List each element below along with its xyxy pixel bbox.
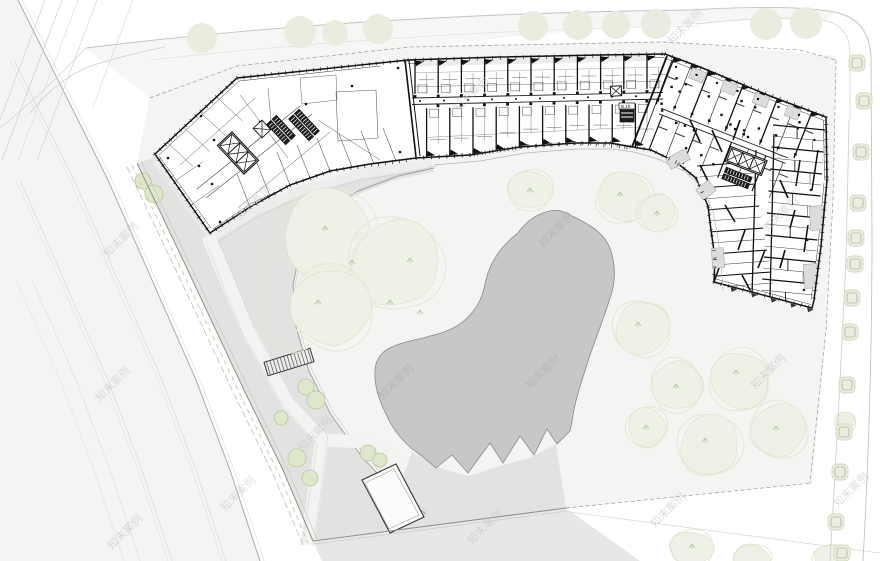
svg-text:B.10: B.10 xyxy=(621,104,631,109)
